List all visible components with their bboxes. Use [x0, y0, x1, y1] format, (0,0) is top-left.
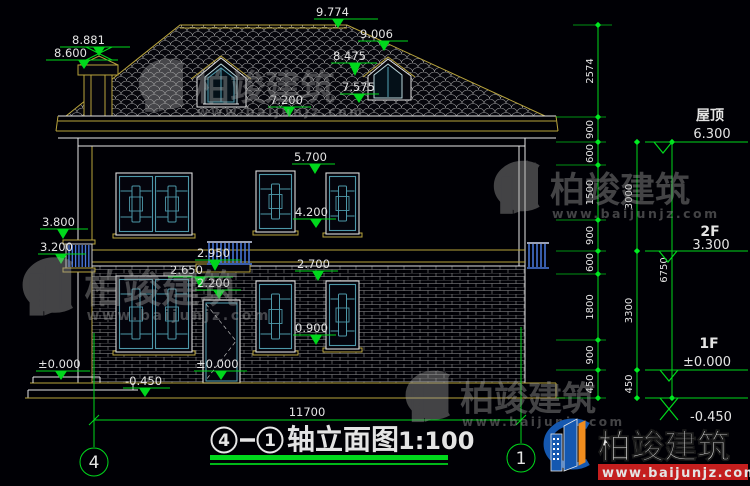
title-underline-thick [210, 455, 448, 460]
axis-bubble-left-label: 4 [89, 453, 100, 473]
level-value: 3.300 [692, 238, 729, 253]
title-axis-from: 4 [218, 431, 230, 451]
level-marker-2: 1F±0.000 [645, 336, 748, 381]
elev-marker-vent_top: 3.800 [40, 215, 88, 239]
dim-chain-value: 600 [585, 253, 596, 272]
watermark-right [497, 161, 720, 221]
dim-chain-value: 1800 [585, 294, 596, 319]
overall-width-label: 11700 [289, 405, 326, 419]
level-name: 1F [699, 336, 718, 352]
dim-chain-value: 3300 [624, 298, 635, 323]
dim-chain-value: 600 [585, 144, 596, 163]
dim-chain-value: 450 [624, 374, 635, 393]
dim-chain-value: 2574 [585, 58, 596, 83]
lattice-window-1 [253, 171, 298, 235]
level-name: 屋顶 [696, 108, 724, 124]
axis-bubble-right: 1 [507, 444, 535, 472]
elev-marker-value: ±0.000 [38, 357, 81, 371]
elev-marker-value: ±0.000 [196, 357, 239, 371]
level-value: -0.450 [690, 410, 732, 425]
logo-url-text: www.baijunjz.com [602, 466, 750, 481]
elevation-canvas: 柏竣建筑 www.baijunjz.com [0, 0, 750, 486]
drawing-title: 4 1 轴立面图 1:100 [210, 423, 474, 465]
dim-chain-value: 900 [585, 120, 596, 139]
elev-marker-value: 8.475 [333, 49, 366, 63]
dim-chain-value: 900 [585, 226, 596, 245]
watermark-left [26, 258, 271, 325]
title-scale: 1:100 [398, 427, 474, 455]
level-marker-0: 屋顶6.300 [645, 108, 748, 153]
elev-marker-value: 8.881 [72, 33, 105, 47]
dim-chain-value: 900 [585, 345, 596, 364]
elev-marker-value: 2.700 [297, 257, 330, 271]
title-text: 轴立面图 [287, 423, 399, 456]
elev-marker-value: 0.900 [295, 321, 328, 335]
logo-brand-text: 柏竣建筑 [598, 427, 730, 466]
elev-marker-value: -0.450 [125, 374, 162, 388]
elev-marker-value: 9.006 [360, 27, 393, 41]
lattice-window-2 [323, 173, 362, 237]
elev-marker-value: 7.575 [342, 80, 375, 94]
elev-marker-value: 2.950 [197, 246, 230, 260]
elev-marker-value: 4.200 [295, 205, 328, 219]
level-value: ±0.000 [683, 355, 731, 370]
eave-cornice [56, 116, 558, 138]
axis-bubble-right-label: 1 [516, 449, 527, 469]
elev-marker-value: 5.700 [294, 150, 327, 164]
level-marker-1: 2F3.300 [645, 224, 748, 262]
elev-marker-value: 9.774 [316, 5, 349, 19]
title-axis-to: 1 [264, 431, 276, 451]
elev-marker-win2f_top: 5.700 [292, 150, 335, 174]
level-value: 6.300 [693, 127, 730, 142]
balcony-railing-right [527, 243, 549, 268]
axis-bubble-left: 4 [80, 448, 108, 476]
lattice-window-5 [323, 281, 362, 352]
title-underline-thin [210, 463, 448, 465]
elev-marker-value: 8.600 [54, 46, 87, 60]
level-marker-3: -0.450 [645, 398, 748, 425]
cad-viewport: 柏竣建筑 www.baijunjz.com [0, 0, 750, 486]
elev-marker-value: 3.800 [42, 215, 75, 229]
elev-marker-value: 3.200 [40, 240, 73, 254]
lattice-window-0 [113, 173, 195, 238]
